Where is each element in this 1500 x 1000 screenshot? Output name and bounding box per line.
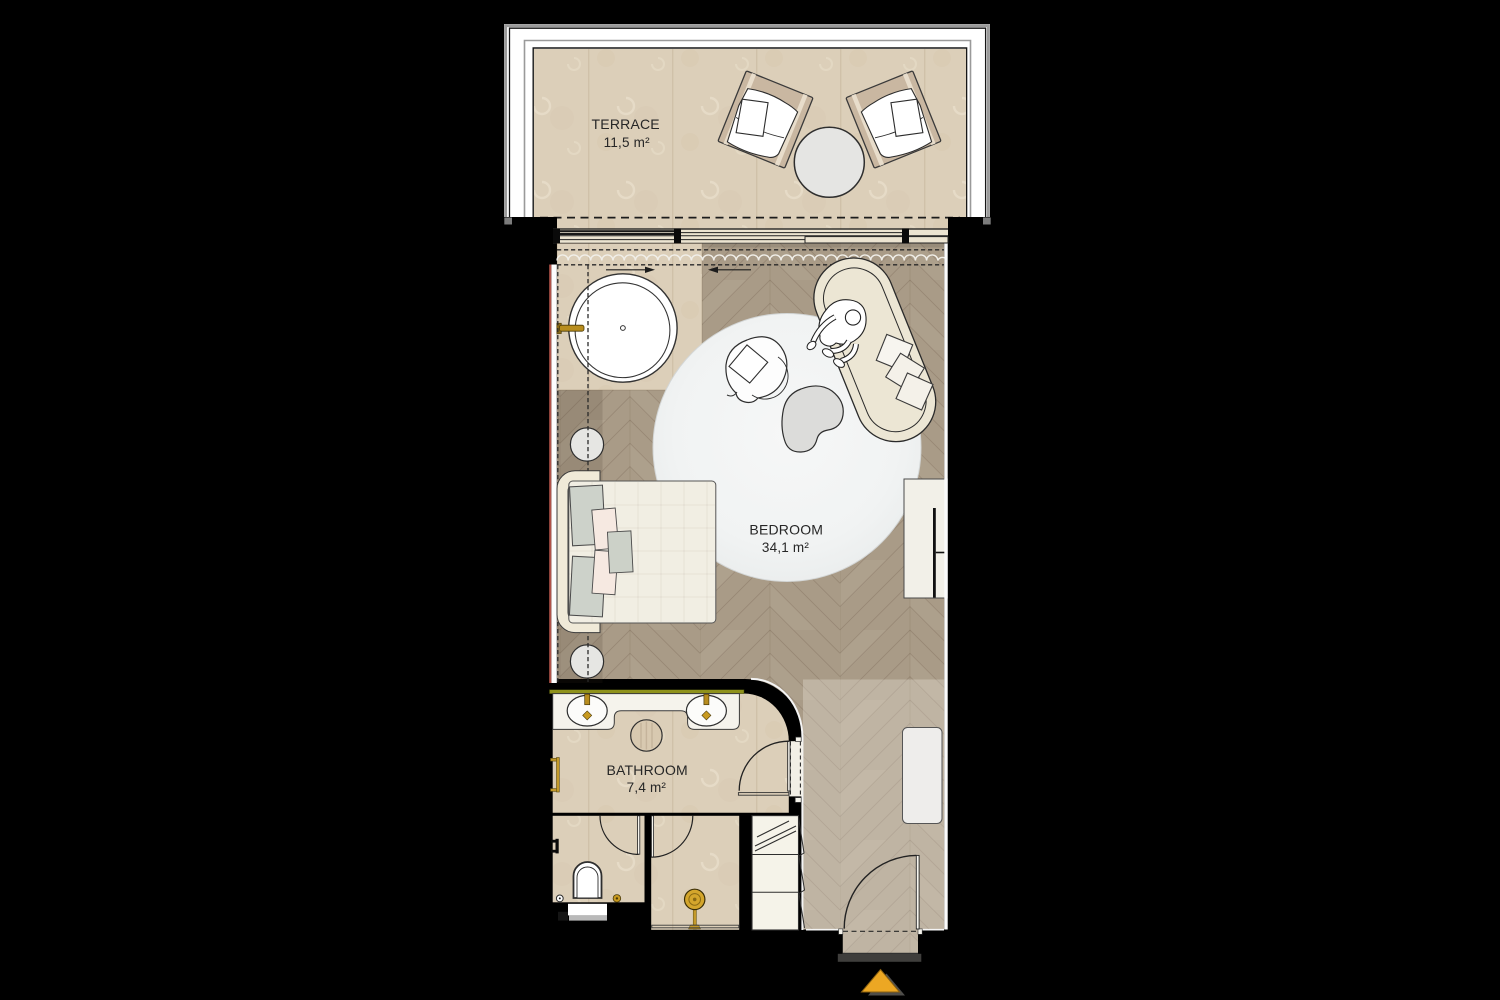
svg-text:11,5 m²: 11,5 m² — [604, 135, 650, 150]
svg-text:TERRACE: TERRACE — [592, 116, 660, 132]
svg-text:BEDROOM: BEDROOM — [749, 522, 823, 538]
svg-text:BATHROOM: BATHROOM — [606, 762, 687, 778]
svg-text:34,1 m²: 34,1 m² — [762, 540, 809, 555]
svg-text:7,4 m²: 7,4 m² — [627, 780, 667, 795]
